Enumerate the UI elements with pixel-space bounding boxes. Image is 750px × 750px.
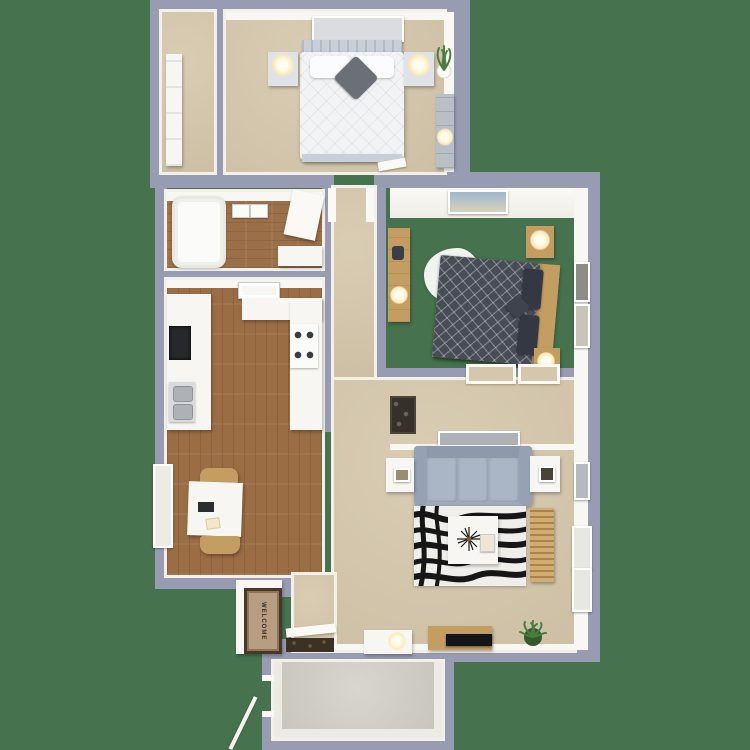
hall-door-frame-2 [518, 364, 560, 384]
wall-bedroom1-right [454, 0, 470, 188]
plant-icon [432, 44, 456, 80]
floor-patio [274, 662, 442, 738]
wall-closet-left [150, 0, 162, 188]
bedroom1-plant [432, 44, 456, 80]
coffee-table-starburst-decor [456, 526, 482, 552]
sofa-back [414, 446, 532, 458]
bedroom1-lamp-left [272, 54, 294, 76]
wall-bathroom-left [155, 180, 167, 280]
sofa-cushion-1 [428, 458, 457, 502]
wall-closet-divider [214, 0, 226, 188]
kitchen-ceiling-light [238, 282, 280, 299]
bedroom2-desk-items [392, 246, 404, 260]
plant-icon [518, 620, 548, 650]
living-sofa [414, 446, 532, 506]
bathroom-wall-cabinet-2 [250, 204, 268, 218]
patio-gate-jamb-bottom [262, 711, 274, 717]
bedroom2-desk-lamp [390, 286, 408, 304]
bathroom-vanity [278, 246, 322, 266]
end-table-right-decor [539, 466, 555, 482]
bathroom-wall-cabinet-1 [232, 204, 250, 218]
patio-stair-rail [228, 696, 257, 750]
living-plant [518, 620, 548, 650]
wall-bedroom1-top [150, 0, 470, 12]
entry-interior-doormat [286, 638, 334, 652]
bedroom1-dresser-lamp [437, 128, 453, 146]
living-tv [446, 634, 492, 646]
dining-chair-bottom [200, 536, 240, 554]
bedroom2-wall-frame-1 [574, 262, 590, 302]
wall-bedroom1-bottom-west [150, 172, 334, 188]
floor-plan-canvas: WELCOME [0, 0, 750, 750]
living-window-1 [572, 526, 592, 570]
bedroom1-lamp-right [408, 54, 430, 76]
sink-basin-bottom [173, 404, 193, 420]
starburst-icon [456, 526, 482, 552]
sink-basin-top [173, 386, 193, 402]
media-cabinet-lamp [388, 632, 406, 650]
sofa-cushion-3 [490, 458, 519, 502]
end-table-left-decor [394, 468, 410, 482]
living-wall-art [438, 431, 520, 447]
wall-patio-left-upper [262, 650, 274, 677]
hall-door-frame-1 [466, 364, 516, 384]
living-slatted-bench [530, 508, 554, 582]
kitchen-dark-cabinet [169, 326, 191, 360]
wall-corridor-right [374, 172, 386, 380]
dining-laptop [198, 502, 214, 512]
wall-entry-left-upper [282, 575, 294, 597]
corridor-door-jamb-right [366, 188, 374, 222]
coffee-table-tray [480, 534, 495, 552]
bedroom2-desk [388, 228, 410, 322]
wall-patio-right [442, 662, 454, 750]
bedroom1-wall-art [312, 16, 404, 42]
kitchen-stove [290, 324, 318, 368]
bedroom2-lamp-top [530, 230, 550, 250]
wall-bathroom-bottom [155, 268, 335, 280]
corridor-door-jamb-left [328, 188, 336, 222]
dining-papers [205, 517, 220, 530]
welcome-mat-label: WELCOME [260, 602, 266, 640]
closet-wardrobe [166, 54, 182, 166]
bedroom2-wall-art [448, 190, 508, 214]
living-window-2 [572, 568, 592, 612]
bathroom-bathtub [172, 196, 226, 268]
hall-closet-shelves [390, 396, 416, 434]
dining-window [153, 464, 173, 548]
wall-patio-bottom [262, 738, 454, 750]
welcome-mat: WELCOME [244, 588, 282, 654]
sofa-arm-left [414, 446, 427, 506]
living-wall-picture [574, 462, 590, 500]
wall-bedroom2-top [374, 172, 600, 188]
kitchen-sink [169, 382, 195, 422]
bedroom2-wall-frame-2 [574, 304, 590, 348]
patio-gate-jamb-top [262, 675, 274, 681]
sofa-cushion-2 [459, 458, 488, 502]
